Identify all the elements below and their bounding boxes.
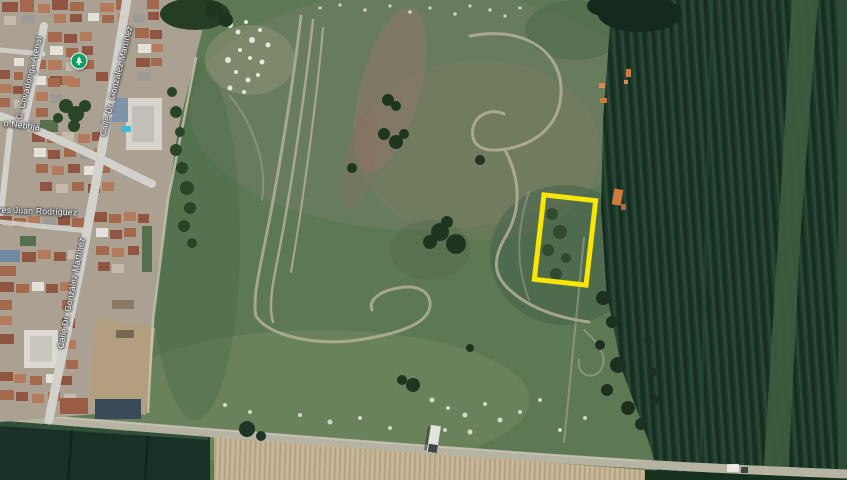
parcel-highlight [532,192,599,288]
satellite-map[interactable]: C. Covadonga Arenal Calle Dr. González M… [0,0,847,480]
tree-icon [75,57,84,66]
poi-marker[interactable] [71,53,88,70]
satellite-imagery [0,0,847,480]
